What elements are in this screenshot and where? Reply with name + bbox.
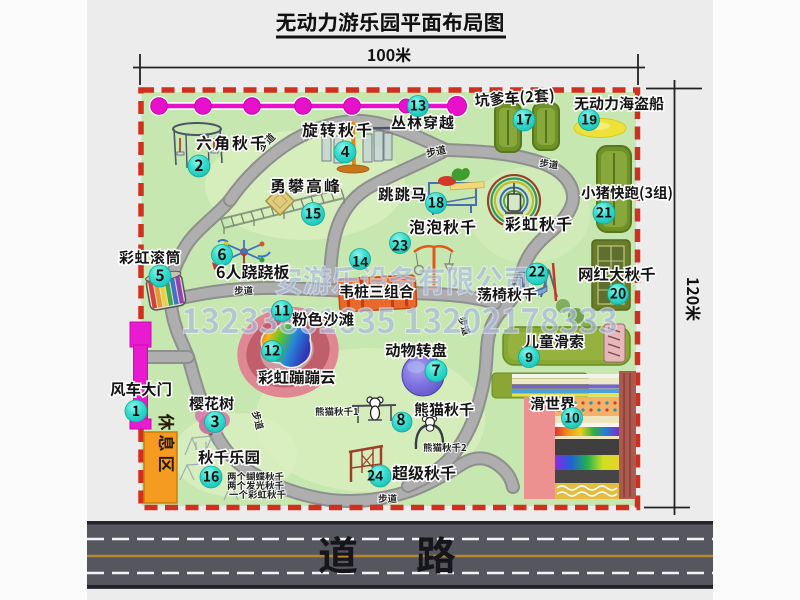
svg-text:粉色沙滩: 粉色沙滩	[292, 308, 355, 330]
svg-text:彩虹滚筒: 彩虹滚筒	[119, 247, 181, 268]
svg-text:6人跷跷板: 6人跷跷板	[216, 259, 289, 283]
svg-text:六角秋千: 六角秋千	[196, 130, 268, 154]
svg-text:17: 17	[516, 110, 533, 130]
svg-text:超级秋千: 超级秋千	[392, 460, 456, 484]
svg-text:彩虹蹦蹦云: 彩虹蹦蹦云	[258, 366, 336, 388]
svg-text:韦桩三组合: 韦桩三组合	[339, 281, 414, 302]
svg-text:旋转秋千: 旋转秋千	[302, 117, 374, 141]
svg-text:步道: 步道	[539, 155, 560, 172]
svg-text:9: 9	[525, 347, 533, 367]
svg-text:12: 12	[264, 341, 281, 361]
svg-text:熊猫秋千1: 熊猫秋千1	[315, 404, 359, 418]
svg-text:22: 22	[529, 262, 546, 282]
svg-text:小猪快跑(3组): 小猪快跑(3组)	[581, 182, 673, 203]
svg-text:8: 8	[396, 408, 405, 430]
svg-text:18: 18	[428, 193, 445, 213]
svg-text:一个彩虹秋千: 一个彩虹秋千	[229, 487, 287, 501]
svg-text:休息区: 休息区	[155, 414, 180, 477]
svg-text:网红大秋千: 网红大秋千	[578, 263, 656, 285]
svg-text:21: 21	[596, 203, 613, 223]
svg-text:11: 11	[274, 301, 291, 321]
svg-text:熊猫秋千2: 熊猫秋千2	[423, 440, 467, 454]
svg-text:19: 19	[581, 110, 597, 130]
svg-text:1: 1	[132, 401, 140, 421]
svg-text:5: 5	[155, 264, 164, 286]
svg-text:荡椅秋千: 荡椅秋千	[477, 284, 537, 305]
svg-text:10: 10	[564, 408, 580, 427]
svg-text:彩虹秋千: 彩虹秋千	[505, 211, 573, 235]
svg-text:100米: 100米	[367, 42, 411, 66]
svg-text:16: 16	[203, 467, 220, 487]
svg-text:15: 15	[305, 204, 322, 224]
svg-text:20: 20	[610, 284, 627, 304]
svg-text:23: 23	[392, 236, 409, 256]
svg-text:7: 7	[431, 359, 440, 381]
svg-text:风车大门: 风车大门	[110, 378, 172, 400]
svg-text:跳跳马: 跳跳马	[378, 183, 428, 205]
svg-text:步道: 步道	[378, 491, 398, 505]
svg-text:勇攀高峰: 勇攀高峰	[270, 173, 342, 197]
svg-text:2: 2	[194, 154, 203, 176]
svg-text:道路: 道路	[318, 524, 514, 582]
svg-text:无动力游乐园平面布局图: 无动力游乐园平面布局图	[276, 6, 505, 36]
svg-text:泡泡秋千: 泡泡秋千	[409, 214, 477, 238]
svg-text:4: 4	[341, 140, 350, 162]
svg-text:3: 3	[210, 410, 219, 432]
svg-text:秋千乐园: 秋千乐园	[198, 446, 260, 468]
svg-text:120米: 120米	[682, 277, 706, 321]
svg-text:14: 14	[352, 252, 368, 272]
svg-text:24: 24	[367, 466, 383, 486]
svg-text:13: 13	[410, 96, 427, 116]
